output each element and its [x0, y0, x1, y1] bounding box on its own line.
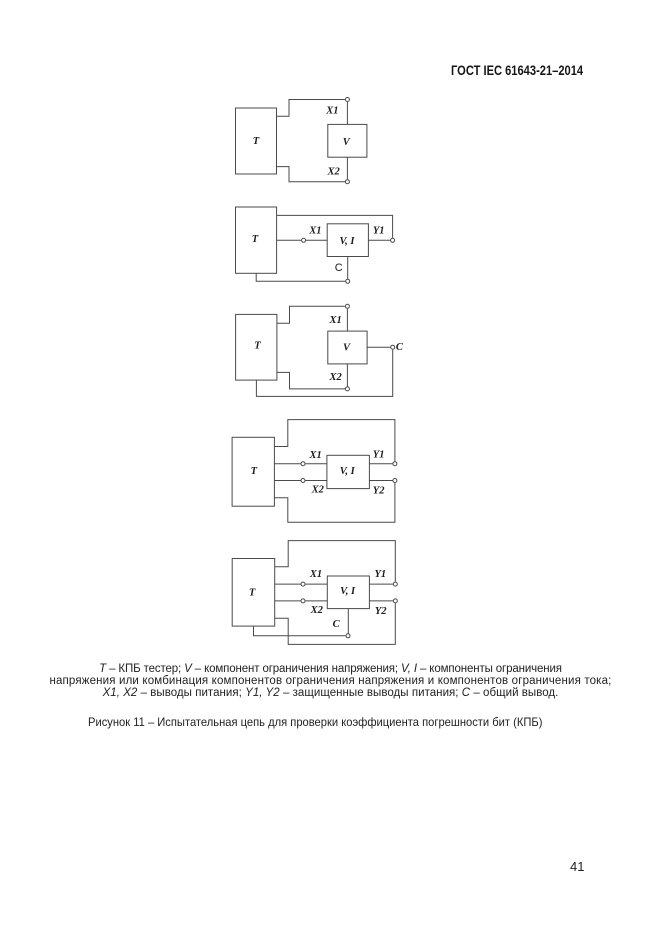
- svg-text:X1: X1: [309, 450, 322, 461]
- svg-text:X1: X1: [308, 226, 321, 237]
- svg-text:C: C: [335, 262, 343, 274]
- svg-text:C: C: [396, 342, 404, 353]
- svg-text:T: T: [254, 340, 261, 351]
- svg-text:T: T: [249, 587, 256, 598]
- svg-text:X1: X1: [309, 569, 322, 580]
- svg-text:V: V: [343, 343, 351, 354]
- svg-text:Y2: Y2: [373, 486, 385, 497]
- svg-text:X1: X1: [329, 315, 342, 326]
- svg-text:T: T: [251, 466, 258, 477]
- svg-text:X2: X2: [311, 485, 325, 496]
- svg-text:V, I: V, I: [340, 236, 356, 247]
- svg-text:Y1: Y1: [373, 226, 385, 237]
- svg-text:Y1: Y1: [373, 449, 385, 460]
- svg-text:X2: X2: [310, 605, 324, 616]
- svg-text:Y2: Y2: [375, 606, 387, 617]
- svg-text:X2: X2: [327, 167, 341, 178]
- svg-text:V: V: [343, 137, 351, 148]
- svg-text:T: T: [252, 234, 259, 245]
- svg-text:T: T: [253, 136, 260, 147]
- svg-text:V, I: V, I: [340, 466, 356, 477]
- svg-text:X1: X1: [325, 106, 338, 117]
- svg-text:Y1: Y1: [375, 569, 387, 580]
- svg-text:C: C: [333, 619, 341, 630]
- svg-text:V, I: V, I: [340, 586, 356, 597]
- svg-text:X2: X2: [329, 372, 343, 383]
